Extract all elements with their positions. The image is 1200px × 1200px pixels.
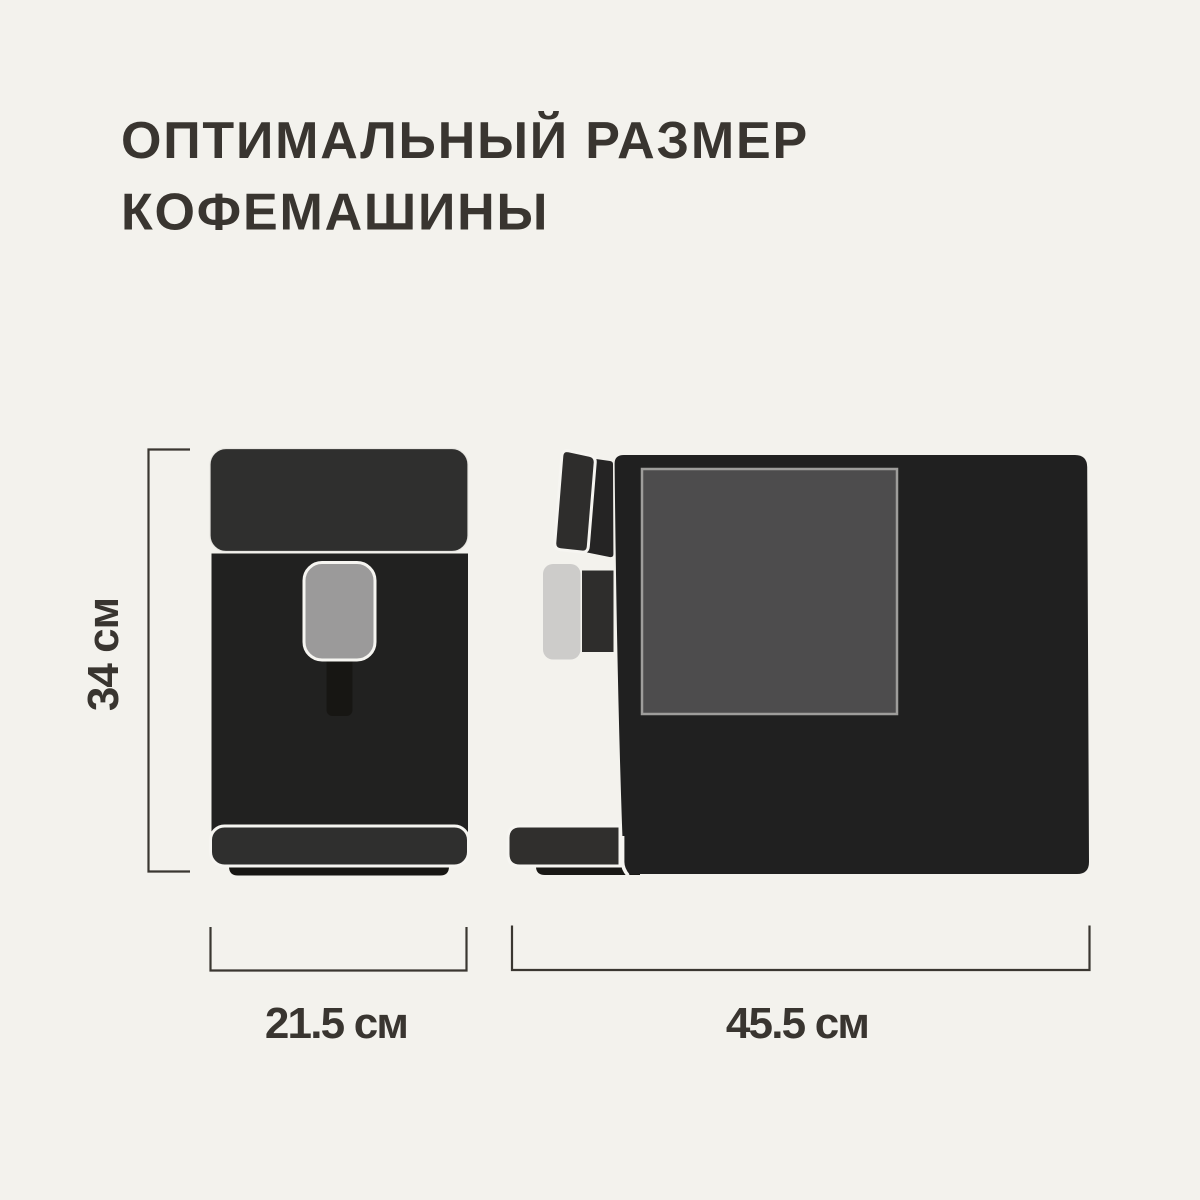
svg-text:34 см: 34 см [79,598,128,711]
svg-text:21.5 см: 21.5 см [265,999,407,1048]
svg-text:45.5 см: 45.5 см [726,999,868,1048]
svg-text:КОФЕМАШИНЫ: КОФЕМАШИНЫ [121,184,549,242]
svg-text:ОПТИМАЛЬНЫЙ РАЗМЕР: ОПТИМАЛЬНЫЙ РАЗМЕР [121,111,809,170]
